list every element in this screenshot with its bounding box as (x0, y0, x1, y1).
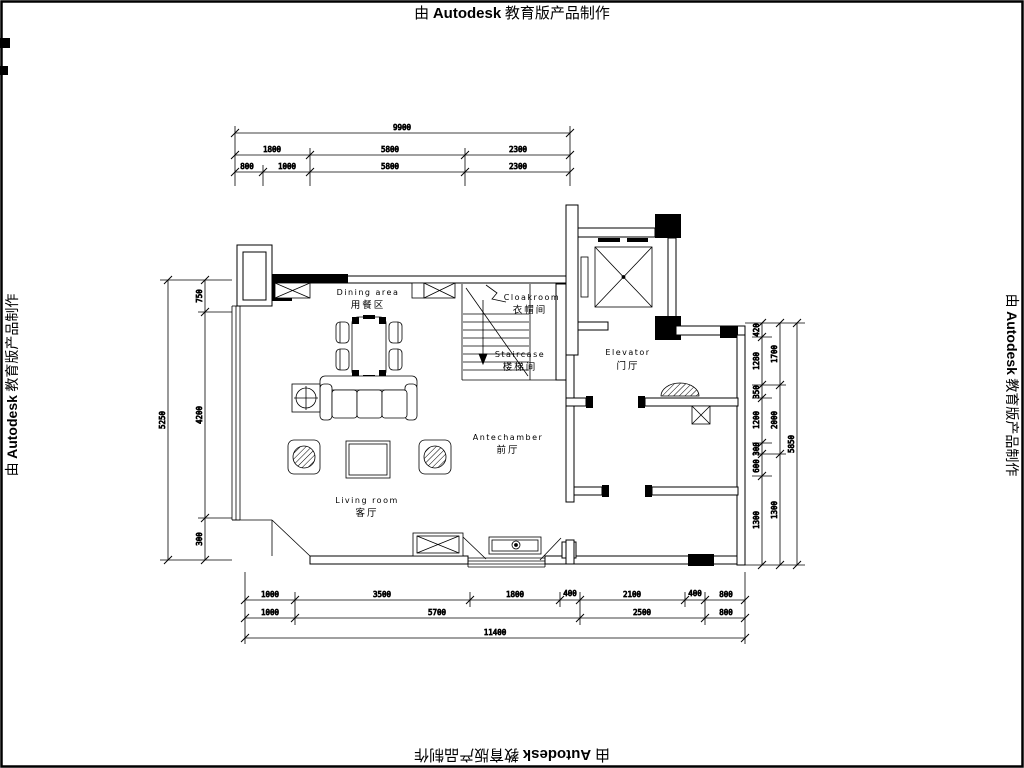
label-cloakroom-zh: 衣帽间 (513, 304, 548, 316)
svg-text:420: 420 (752, 323, 761, 337)
label-staircase-zh: 楼梯间 (503, 361, 538, 373)
svg-text:350: 350 (752, 385, 761, 399)
dim-left: 750 4200 300 5250 (158, 276, 232, 564)
side-table (292, 384, 320, 412)
svg-text:600: 600 (752, 459, 761, 473)
watermark-left: 由 Autodesk 教育版产品制作 (2, 294, 22, 477)
dim-right: 420 1280 350 1200 300 600 1300 1700 2000… (745, 319, 805, 569)
svg-text:2100: 2100 (623, 590, 642, 599)
watermark-right: 由 Autodesk 教育版产品制作 (1002, 294, 1022, 477)
armchair-left (288, 440, 320, 474)
sofa (320, 376, 417, 420)
dim-top: 9900 1800 5800 2300 800 1000 5800 2300 (231, 123, 574, 186)
armchair-right (419, 440, 451, 474)
dim-bottom: 1000 3500 1800 400 2100 400 800 1000 570… (241, 572, 749, 644)
svg-text:1300: 1300 (752, 510, 761, 529)
floor-plan-drawing: Dining area 用餐区 Cloakroom 衣帽间 Staircase … (0, 0, 1024, 768)
svg-text:1300: 1300 (770, 500, 779, 519)
svg-text:2300: 2300 (509, 145, 528, 154)
svg-text:1200: 1200 (752, 410, 761, 429)
cad-sheet: Dining area 用餐区 Cloakroom 衣帽间 Staircase … (0, 0, 1024, 768)
svg-text:300: 300 (195, 532, 204, 546)
label-elevator-zh: 门厅 (616, 360, 639, 372)
svg-text:5700: 5700 (428, 608, 447, 617)
svg-text:2500: 2500 (633, 608, 652, 617)
svg-text:800: 800 (719, 590, 733, 599)
label-staircase-en: Staircase (495, 350, 545, 359)
svg-text:2000: 2000 (770, 410, 779, 429)
label-antechamber-en: Antechamber (473, 433, 544, 442)
label-dining-zh: 用餐区 (351, 299, 386, 311)
svg-text:1800: 1800 (263, 145, 282, 154)
label-antechamber-zh: 前厅 (496, 444, 519, 456)
shoe-cabinet (661, 383, 699, 396)
svg-text:800: 800 (240, 162, 254, 171)
dining-set (336, 315, 402, 379)
label-dining-en: Dining area (337, 288, 400, 297)
svg-text:5800: 5800 (381, 162, 400, 171)
plot-mark (0, 38, 10, 48)
svg-text:1000: 1000 (261, 608, 280, 617)
svg-text:4200: 4200 (195, 405, 204, 424)
svg-text:400: 400 (563, 589, 577, 598)
svg-text:1700: 1700 (770, 344, 779, 363)
svg-text:800: 800 (719, 608, 733, 617)
watermark-top: 由 Autodesk 教育版产品制作 (414, 2, 610, 23)
elevator-car (581, 247, 652, 307)
svg-text:1800: 1800 (506, 590, 525, 599)
label-elevator-en: Elevator (605, 348, 650, 357)
svg-text:750: 750 (195, 289, 204, 303)
label-living-zh: 客厅 (355, 507, 378, 519)
watermark-bottom: 由 Autodesk 教育版产品制作 (414, 745, 610, 766)
coffee-table (346, 441, 390, 478)
svg-text:5250: 5250 (158, 410, 167, 429)
svg-text:1280: 1280 (752, 351, 761, 370)
label-cloakroom-en: Cloakroom (504, 293, 560, 302)
svg-text:5800: 5800 (381, 145, 400, 154)
svg-text:3500: 3500 (373, 590, 392, 599)
tv-console (489, 537, 541, 554)
plot-mark (0, 66, 8, 75)
svg-text:2300: 2300 (509, 162, 528, 171)
svg-text:11400: 11400 (484, 628, 507, 637)
svg-text:1000: 1000 (261, 590, 280, 599)
label-living-en: Living room (335, 496, 399, 505)
svg-text:400: 400 (688, 589, 702, 598)
svg-text:300: 300 (752, 442, 761, 456)
svg-text:9900: 9900 (393, 123, 412, 132)
svg-text:1000: 1000 (278, 162, 297, 171)
sheet-border (2, 2, 1023, 767)
svg-text:5850: 5850 (787, 434, 796, 453)
